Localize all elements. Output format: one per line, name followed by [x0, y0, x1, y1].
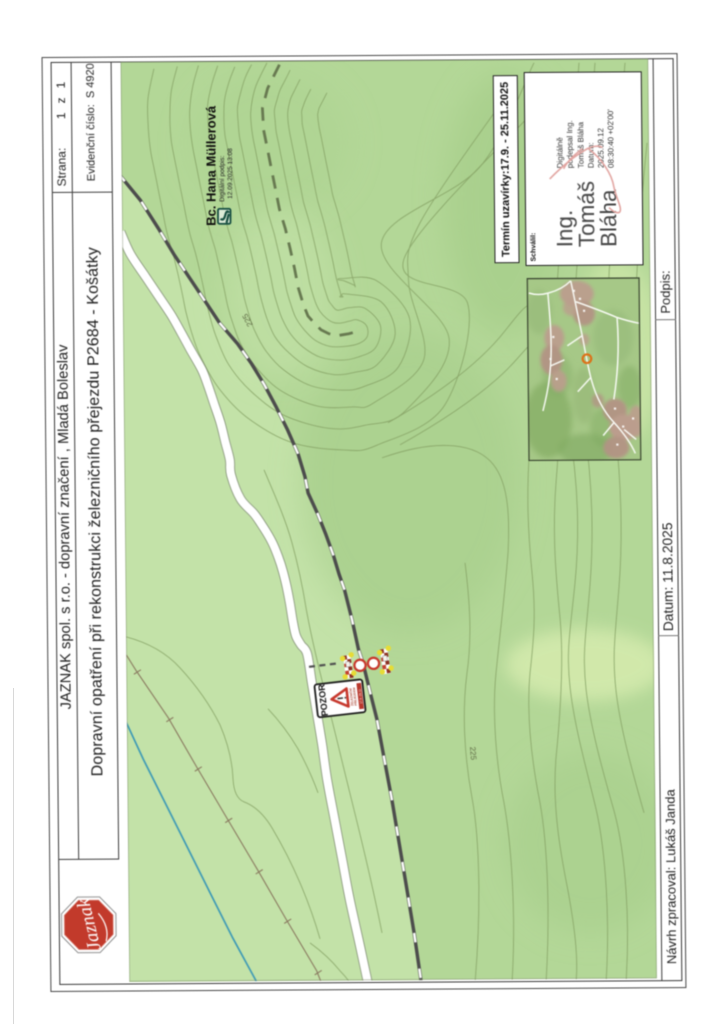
- svg-text:225: 225: [468, 747, 478, 761]
- svg-text:12.09.2025 13:08: 12.09.2025 13:08: [227, 148, 234, 199]
- svg-text:Bc. Hana Müllerová: Bc. Hana Müllerová: [204, 106, 219, 227]
- svg-text:Digitální podpis:: Digitální podpis:: [219, 156, 226, 202]
